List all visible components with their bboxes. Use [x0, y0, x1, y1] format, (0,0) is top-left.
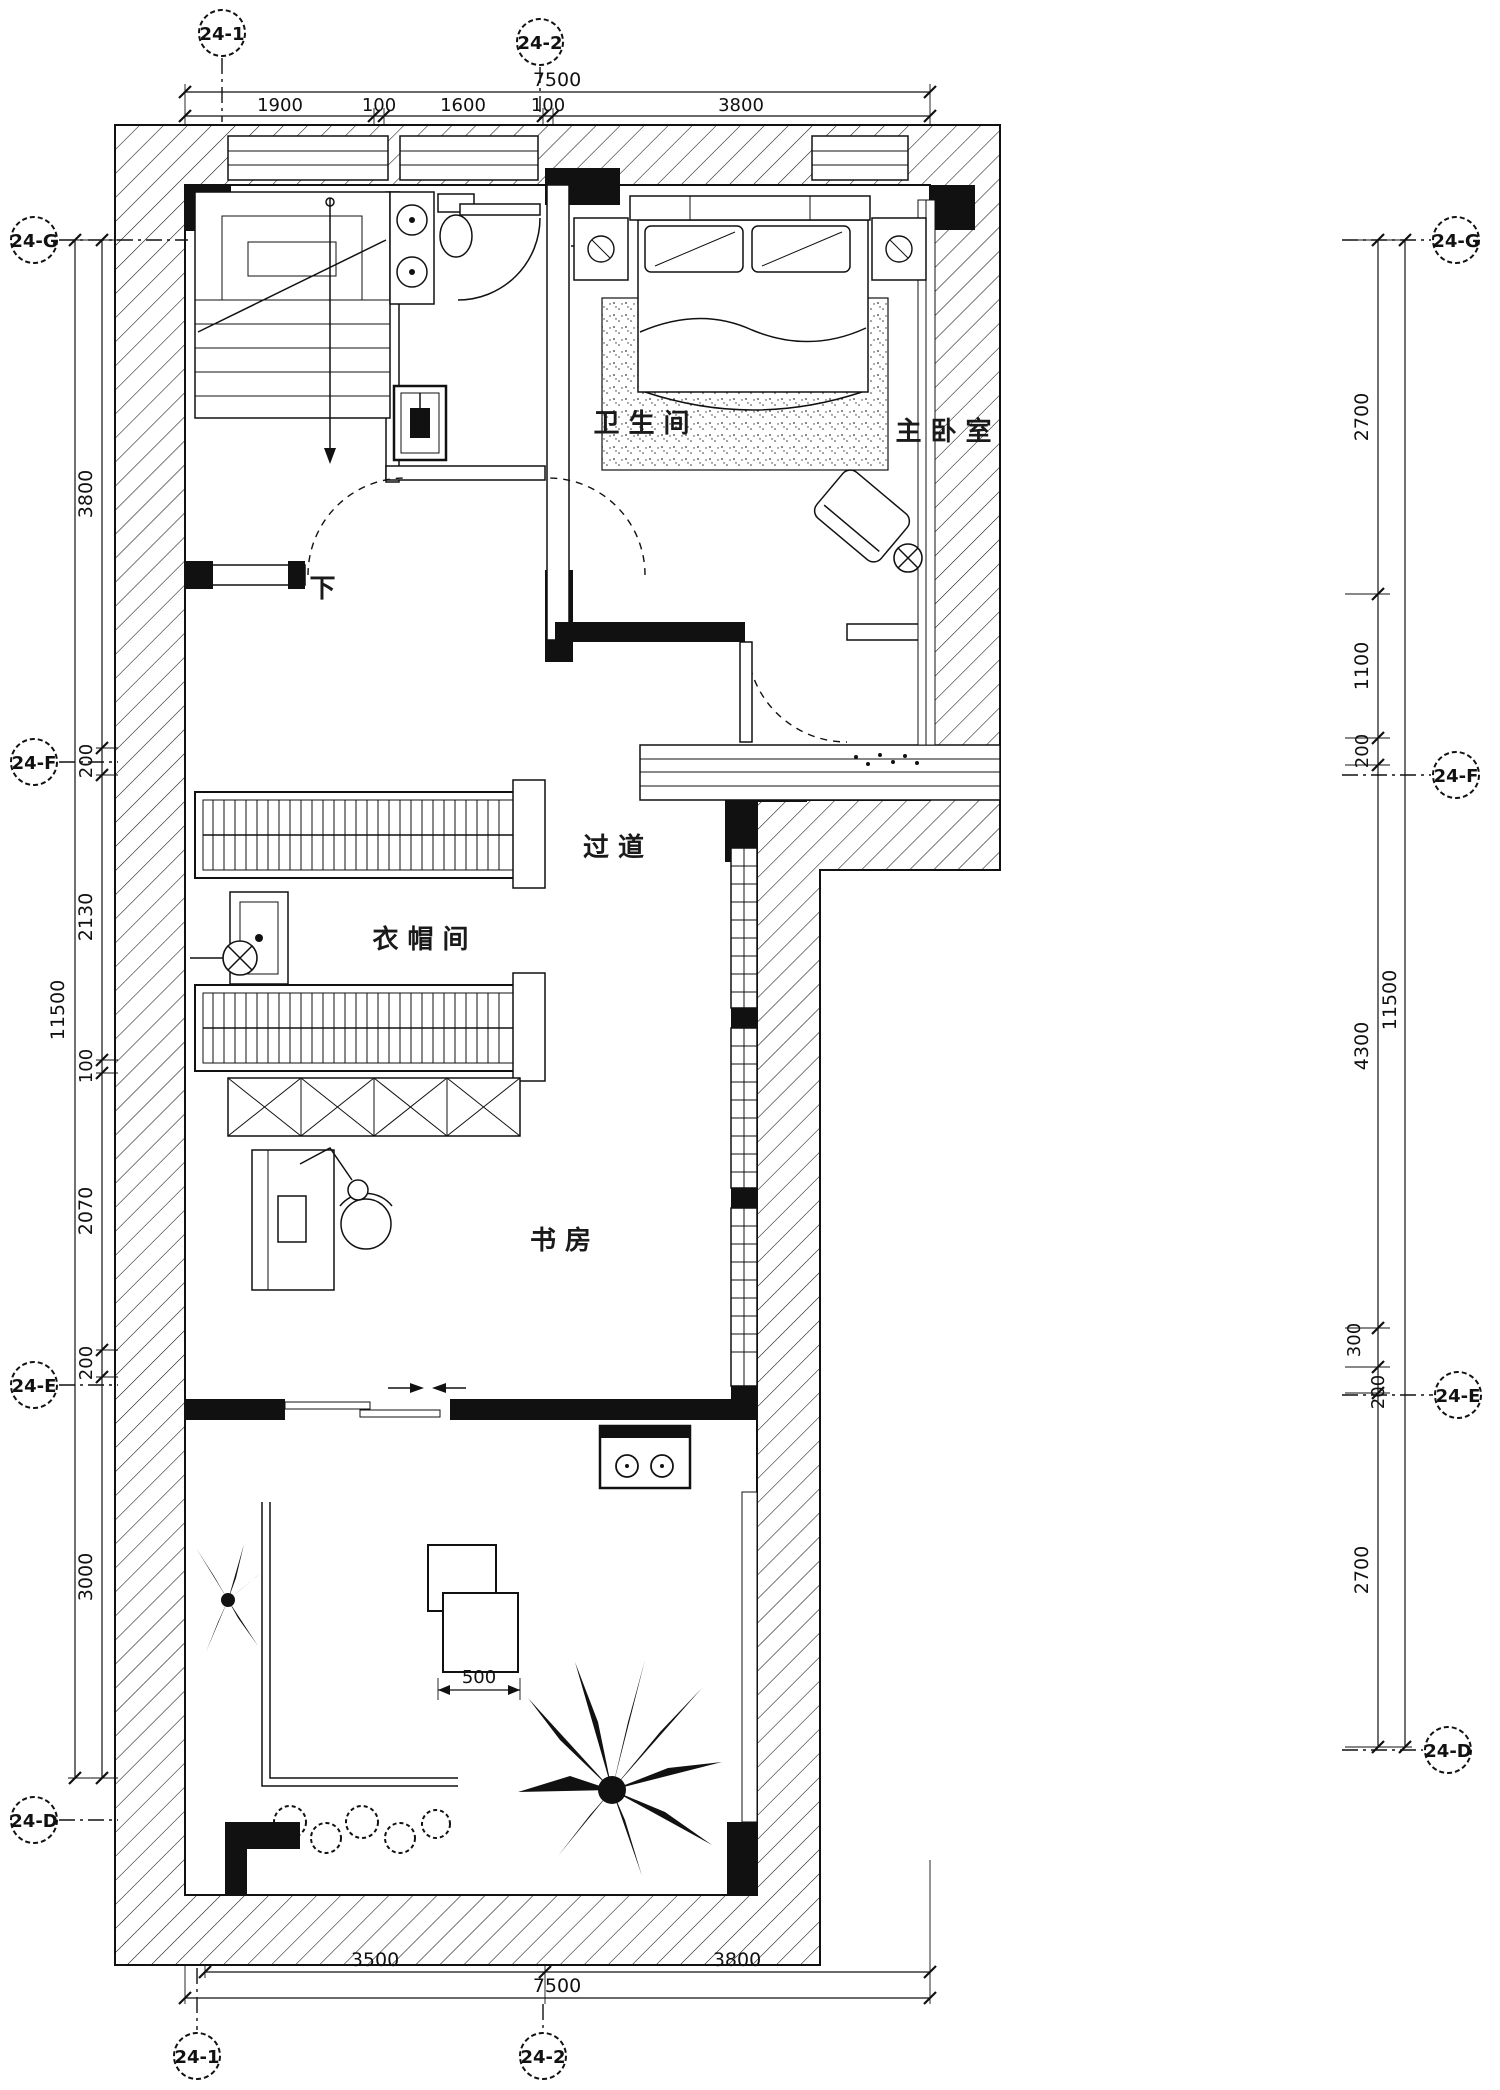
bed	[630, 196, 870, 410]
dim-right-2: 1100	[1351, 642, 1373, 690]
bathroom-door-leaf	[460, 204, 540, 215]
shoe-cabinet	[228, 1078, 520, 1136]
svg-text:24-2: 24-2	[520, 2047, 565, 2068]
svg-text:24-E: 24-E	[1436, 1386, 1481, 1407]
window-top-bathroom	[400, 136, 538, 180]
window-top-bedroom	[812, 136, 908, 180]
dim-right-6: 200	[1368, 1375, 1389, 1409]
dim-left-4: 100	[76, 1049, 97, 1083]
floor-plan-page: 500	[0, 0, 1500, 2090]
floor-drain-symbol	[894, 544, 922, 572]
dim-left-3: 2130	[75, 893, 97, 941]
bedroom-door-arc	[747, 642, 847, 742]
svg-text:24-E: 24-E	[12, 1376, 57, 1397]
axis-bubble-bottom-1: 24-1	[174, 2033, 220, 2079]
axis-bubble-left-f: 24-F	[11, 739, 57, 785]
monitor	[278, 1196, 306, 1242]
bedroom-east-window	[918, 200, 935, 745]
shrub-row	[274, 1806, 450, 1853]
nightstand-right	[872, 218, 926, 280]
svg-text:24-D: 24-D	[10, 1811, 57, 1832]
double-vanity	[390, 192, 434, 304]
axis-bubble-top-2: 24-2	[517, 19, 563, 65]
dim-bottom-2: 3800	[713, 1949, 761, 1971]
svg-text:24-1: 24-1	[199, 24, 244, 45]
dim-left-2: 200	[76, 744, 97, 778]
dim-bottom-overall: 7500	[533, 1975, 581, 1997]
dim-top-4: 100	[531, 95, 565, 116]
cloakroom-furniture	[190, 780, 545, 1136]
svg-text:24-G: 24-G	[10, 231, 57, 252]
mirror-lamp-symbol	[190, 941, 257, 975]
dim-left-6: 200	[76, 1346, 97, 1380]
svg-text:24-D: 24-D	[1424, 1741, 1471, 1762]
terrace-items: 500	[196, 1426, 722, 1876]
corridor-door-arcs	[308, 478, 645, 575]
axis-bubble-left-d: 24-D	[10, 1797, 57, 1843]
small-plant	[196, 1544, 262, 1652]
axis-bubble-left-g: 24-G	[10, 217, 57, 263]
study-east-windows	[731, 848, 757, 1402]
floor-plan-drawing: 500	[0, 0, 1500, 2090]
dim-left-5: 2070	[75, 1187, 97, 1235]
dim-right-7: 2700	[1351, 1546, 1373, 1594]
dim-right-4: 4300	[1351, 1022, 1373, 1070]
label-stair-down: 下	[309, 574, 344, 604]
study-furniture	[252, 1148, 392, 1290]
master-bedroom-furniture	[574, 196, 926, 742]
svg-text:24-2: 24-2	[517, 33, 562, 54]
label-corridor: 过道	[583, 832, 653, 863]
axis-bubble-bottom-2: 24-2	[520, 2033, 566, 2079]
axis-bubble-right-g: 24-G	[1432, 217, 1479, 263]
desk-chair	[340, 1193, 392, 1249]
axis-bubble-left-e: 24-E	[11, 1362, 57, 1408]
svg-text:24-F: 24-F	[12, 753, 57, 774]
palm-plant	[518, 1660, 722, 1876]
window-top-stair	[228, 136, 388, 180]
axis-bubble-right-d: 24-D	[1424, 1727, 1471, 1773]
terrace-partition-wall	[185, 1383, 757, 1420]
svg-text:24-1: 24-1	[174, 2047, 219, 2068]
side-tables	[428, 1545, 518, 1672]
terrace-window	[742, 1492, 757, 1822]
label-cloakroom: 衣帽间	[372, 924, 477, 955]
bedroom-door-leaf	[740, 642, 752, 742]
dim-500-label: 500	[462, 1667, 496, 1688]
dim-top-3: 1600	[440, 95, 486, 116]
axis-bubble-right-e: 24-E	[1435, 1372, 1481, 1418]
svg-text:24-F: 24-F	[1434, 766, 1479, 787]
dim-bottom-1: 3500	[351, 1949, 399, 1971]
dim-left-overall: 11500	[47, 980, 69, 1040]
dim-top-5: 3800	[718, 95, 764, 116]
staircase	[195, 192, 390, 464]
dim-left-7: 3000	[75, 1553, 97, 1601]
nightstand-left	[574, 218, 628, 280]
label-master-bedroom: 主卧室	[895, 416, 1000, 447]
washbasin	[394, 386, 446, 460]
dim-top-2: 100	[362, 95, 396, 116]
dim-right-5: 300	[1344, 1323, 1365, 1357]
label-study: 书房	[530, 1226, 600, 1256]
bedroom-sill-window	[640, 745, 1000, 800]
dim-left-1: 3800	[75, 470, 97, 518]
wardrobe-lower	[195, 973, 545, 1081]
axis-bubble-right-f: 24-F	[1433, 752, 1479, 798]
svg-text:24-G: 24-G	[1432, 231, 1479, 252]
dim-right-overall: 11500	[1379, 970, 1401, 1030]
label-bathroom: 卫生间	[593, 409, 698, 439]
dim-top-1: 1900	[257, 95, 303, 116]
axis-bubble-top-1: 24-1	[199, 10, 245, 56]
wardrobe-upper	[195, 780, 545, 888]
dim-right-3: 200	[1352, 734, 1373, 768]
stove-counter	[600, 1426, 690, 1488]
dim-right-1: 2700	[1351, 393, 1373, 441]
